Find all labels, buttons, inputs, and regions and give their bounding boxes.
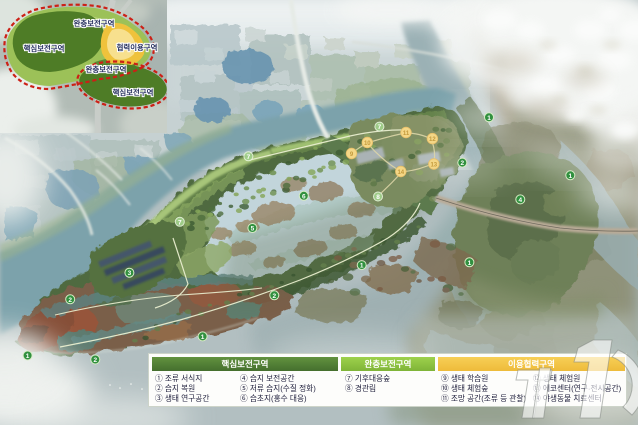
svg-text:1: 1 [468,260,472,267]
svg-text:7: 7 [178,219,182,226]
svg-text:14: 14 [397,170,404,176]
svg-text:7: 7 [378,124,382,131]
svg-text:10: 10 [364,141,371,147]
svg-text:1: 1 [568,173,572,180]
svg-text:1: 1 [201,334,205,341]
svg-text:2: 2 [93,357,97,364]
svg-text:핵심보전구역: 핵심보전구역 [24,44,65,53]
svg-text:1: 1 [26,353,30,360]
svg-text:2: 2 [460,160,464,167]
svg-text:8: 8 [376,194,380,201]
svg-text:13: 13 [430,163,437,169]
svg-text:11: 11 [403,131,410,137]
svg-text:1: 1 [360,263,364,270]
svg-text:1: 1 [487,115,491,122]
svg-text:완충보전구역: 완충보전구역 [86,65,127,74]
svg-text:협력이용구역: 협력이용구역 [117,43,158,52]
svg-text:2: 2 [68,297,72,304]
svg-text:5: 5 [251,226,255,233]
svg-text:핵심보전구역: 핵심보전구역 [113,88,154,97]
svg-text:3: 3 [128,270,132,277]
svg-text:4: 4 [518,197,522,204]
svg-text:완충보전구역: 완충보전구역 [74,19,115,28]
svg-text:12: 12 [429,137,436,143]
svg-text:6: 6 [302,193,306,200]
svg-text:7: 7 [247,154,251,161]
svg-text:2: 2 [272,293,276,300]
